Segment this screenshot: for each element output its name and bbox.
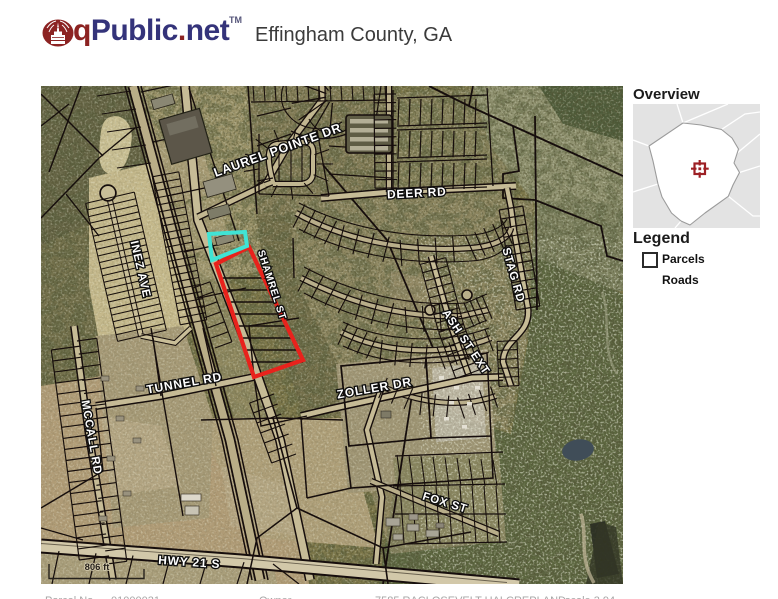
svg-text:806 ft: 806 ft: [85, 562, 111, 573]
